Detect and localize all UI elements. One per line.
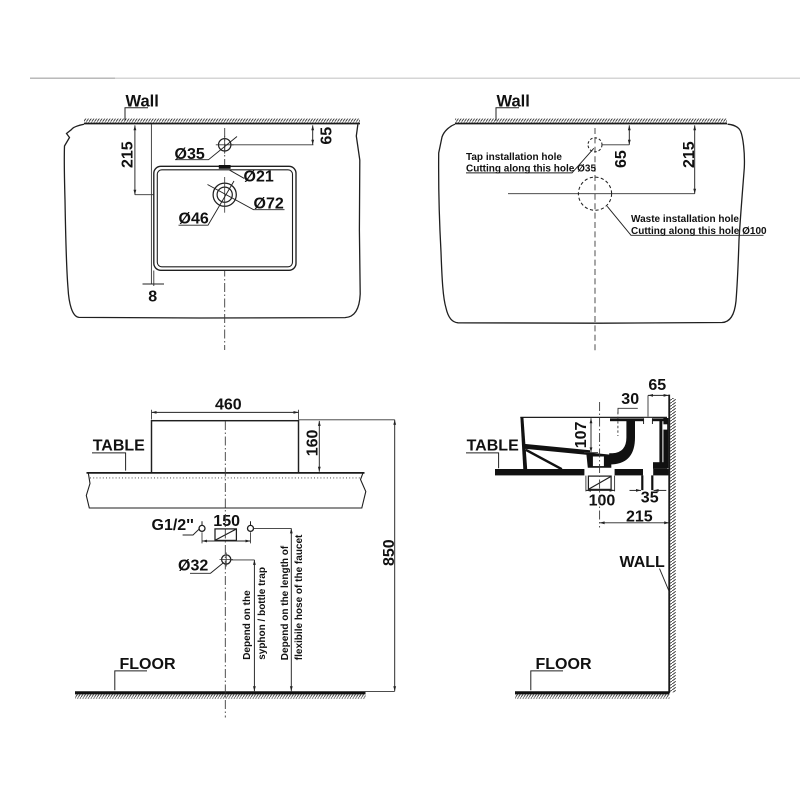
svg-text:Tap installation hole: Tap installation hole (466, 152, 562, 163)
svg-text:215: 215 (120, 141, 137, 168)
svg-text:215: 215 (681, 141, 698, 168)
svg-text:100: 100 (589, 492, 616, 509)
svg-text:G1/2'': G1/2'' (152, 517, 194, 534)
svg-text:35: 35 (641, 490, 659, 507)
svg-text:syphon / bottle trap: syphon / bottle trap (257, 567, 268, 660)
svg-text:TABLE: TABLE (93, 437, 145, 454)
svg-text:Waste installation hole: Waste installation hole (631, 214, 739, 225)
svg-text:160: 160 (305, 430, 322, 457)
svg-text:65: 65 (613, 150, 630, 168)
svg-text:850: 850 (381, 539, 398, 566)
svg-text:30: 30 (621, 391, 639, 408)
svg-text:65: 65 (319, 127, 336, 145)
svg-text:FLOOR: FLOOR (536, 656, 592, 673)
svg-text:Ø32: Ø32 (178, 558, 208, 575)
svg-text:flexibile hose of the faucet: flexibile hose of the faucet (294, 534, 305, 660)
svg-text:TABLE: TABLE (467, 437, 519, 454)
svg-text:150: 150 (213, 513, 240, 530)
svg-text:Depend on the: Depend on the (242, 590, 253, 660)
svg-text:Ø21: Ø21 (244, 169, 274, 186)
svg-text:107: 107 (573, 422, 590, 449)
svg-text:460: 460 (215, 397, 242, 414)
svg-text:65: 65 (648, 377, 666, 394)
svg-text:Ø35: Ø35 (175, 146, 205, 163)
svg-text:8: 8 (148, 289, 157, 306)
svg-text:WALL: WALL (620, 554, 666, 571)
svg-text:215: 215 (626, 508, 653, 525)
svg-text:Depend on the length of: Depend on the length of (280, 545, 291, 660)
svg-text:FLOOR: FLOOR (120, 656, 176, 673)
